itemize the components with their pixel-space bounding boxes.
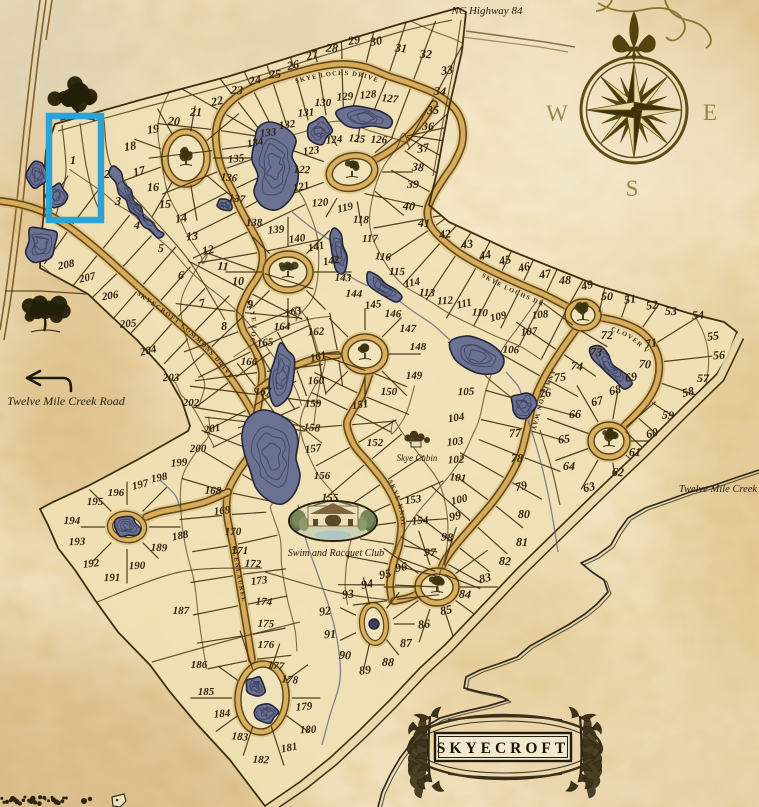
svg-text:193: 193: [69, 536, 86, 549]
svg-text:SKYECROFT: SKYECROFT: [437, 740, 569, 757]
svg-text:202: 202: [182, 397, 200, 409]
svg-text:187: 187: [173, 605, 190, 617]
svg-text:122: 122: [293, 164, 311, 177]
svg-text:25: 25: [268, 67, 281, 81]
svg-text:88: 88: [382, 655, 395, 670]
svg-text:30: 30: [368, 33, 383, 49]
svg-text:189: 189: [151, 542, 168, 555]
svg-text:185: 185: [198, 686, 215, 698]
svg-text:108: 108: [531, 308, 549, 322]
svg-text:182: 182: [252, 754, 270, 767]
svg-text:18: 18: [123, 138, 137, 154]
svg-text:167: 167: [255, 386, 272, 398]
svg-text:129: 129: [336, 90, 354, 103]
svg-text:112: 112: [437, 294, 454, 307]
svg-text:40: 40: [401, 198, 415, 213]
svg-text:101: 101: [449, 471, 467, 485]
svg-text:113: 113: [419, 287, 436, 300]
svg-text:151: 151: [351, 398, 369, 412]
svg-text:61: 61: [629, 445, 641, 459]
svg-text:73: 73: [589, 345, 602, 360]
svg-text:143: 143: [335, 272, 352, 285]
svg-text:92: 92: [318, 603, 332, 619]
svg-text:90: 90: [339, 648, 352, 663]
svg-text:178: 178: [281, 673, 299, 686]
svg-text:128: 128: [359, 88, 377, 101]
svg-text:74: 74: [570, 359, 583, 374]
svg-text:62: 62: [612, 465, 625, 480]
svg-text:29: 29: [346, 32, 361, 48]
svg-text:147: 147: [400, 323, 417, 335]
svg-text:87: 87: [400, 636, 413, 650]
svg-text:110: 110: [472, 306, 489, 319]
svg-text:84: 84: [458, 587, 471, 602]
svg-text:11: 11: [217, 259, 229, 274]
svg-text:203: 203: [162, 372, 180, 384]
svg-text:51: 51: [623, 291, 637, 306]
svg-text:162: 162: [307, 326, 325, 339]
svg-text:98: 98: [440, 529, 453, 544]
svg-text:106: 106: [502, 344, 520, 357]
svg-text:Twelve Mile Creek: Twelve Mile Creek: [679, 484, 757, 495]
svg-text:97: 97: [424, 545, 437, 559]
svg-text:10: 10: [232, 274, 244, 288]
svg-text:W: W: [546, 101, 568, 126]
svg-text:16: 16: [147, 180, 160, 195]
svg-text:78: 78: [511, 451, 523, 465]
svg-text:36: 36: [421, 119, 434, 133]
svg-text:117: 117: [362, 233, 379, 245]
svg-text:6: 6: [178, 268, 185, 282]
svg-text:160: 160: [308, 375, 325, 388]
svg-text:72: 72: [601, 328, 613, 342]
svg-text:22: 22: [209, 93, 224, 109]
svg-text:166: 166: [241, 356, 258, 369]
svg-text:123: 123: [302, 144, 321, 158]
svg-text:159: 159: [305, 398, 322, 410]
svg-text:38: 38: [410, 159, 424, 174]
svg-text:194: 194: [64, 515, 81, 527]
svg-text:32: 32: [419, 47, 433, 62]
svg-text:71: 71: [644, 335, 658, 351]
svg-text:1: 1: [70, 153, 76, 167]
svg-text:171: 171: [232, 545, 249, 557]
svg-text:135: 135: [227, 152, 245, 166]
svg-text:177: 177: [267, 659, 285, 673]
svg-text:164: 164: [274, 321, 291, 333]
svg-text:131: 131: [297, 106, 314, 119]
svg-text:195: 195: [87, 496, 104, 508]
svg-text:200: 200: [189, 443, 207, 455]
svg-text:E: E: [703, 100, 717, 125]
svg-text:168: 168: [205, 485, 222, 498]
svg-text:148: 148: [410, 341, 427, 353]
svg-text:94: 94: [360, 576, 374, 592]
svg-text:64: 64: [563, 459, 575, 473]
svg-text:130: 130: [315, 97, 332, 109]
svg-text:42: 42: [437, 226, 452, 242]
svg-text:91: 91: [324, 627, 337, 642]
svg-text:156: 156: [314, 470, 331, 482]
svg-text:174: 174: [255, 596, 273, 609]
svg-text:Skye Cabin: Skye Cabin: [397, 453, 438, 463]
svg-text:152: 152: [367, 437, 384, 449]
svg-text:102: 102: [447, 454, 465, 467]
svg-text:155: 155: [322, 492, 339, 504]
svg-text:107: 107: [520, 325, 538, 338]
svg-text:43: 43: [459, 236, 474, 251]
svg-text:126: 126: [370, 134, 388, 147]
svg-text:180: 180: [299, 724, 317, 737]
svg-text:20: 20: [167, 114, 181, 129]
svg-text:44: 44: [477, 247, 492, 263]
svg-text:23: 23: [230, 83, 243, 97]
svg-text:138: 138: [246, 217, 263, 229]
svg-text:144: 144: [345, 288, 363, 301]
svg-text:153: 153: [404, 493, 423, 507]
svg-text:186: 186: [191, 659, 208, 671]
svg-text:205: 205: [118, 317, 137, 331]
svg-text:146: 146: [385, 308, 402, 321]
svg-text:184: 184: [213, 707, 231, 720]
svg-text:24: 24: [247, 72, 262, 88]
svg-text:165: 165: [256, 336, 274, 349]
svg-text:136: 136: [220, 171, 238, 185]
svg-text:175: 175: [257, 618, 275, 631]
svg-text:69: 69: [624, 369, 638, 385]
svg-text:93: 93: [341, 586, 355, 602]
svg-text:179: 179: [295, 700, 313, 713]
svg-text:21: 21: [189, 105, 202, 119]
svg-text:183: 183: [231, 730, 249, 743]
svg-text:158: 158: [303, 421, 321, 434]
svg-text:125: 125: [348, 132, 366, 146]
svg-text:80: 80: [518, 507, 530, 521]
svg-text:190: 190: [129, 560, 146, 573]
svg-text:154: 154: [411, 514, 429, 527]
svg-text:52: 52: [645, 297, 659, 313]
svg-text:19: 19: [146, 121, 160, 137]
svg-text:137: 137: [228, 192, 246, 205]
svg-text:34: 34: [432, 83, 446, 98]
svg-text:172: 172: [244, 558, 262, 571]
svg-text:41: 41: [417, 216, 431, 231]
svg-text:76: 76: [538, 385, 552, 400]
svg-text:86: 86: [417, 616, 431, 631]
svg-text:53: 53: [665, 304, 677, 318]
svg-text:65: 65: [557, 431, 571, 446]
svg-text:115: 115: [389, 266, 406, 278]
svg-text:132: 132: [278, 118, 297, 132]
svg-text:149: 149: [406, 370, 423, 382]
svg-text:50: 50: [601, 289, 613, 303]
svg-text:196: 196: [108, 487, 125, 499]
svg-text:55: 55: [706, 328, 720, 344]
svg-text:31: 31: [393, 40, 407, 55]
svg-text:150: 150: [381, 386, 398, 398]
svg-text:8: 8: [220, 319, 227, 333]
svg-text:169: 169: [213, 504, 231, 518]
svg-text:157: 157: [304, 442, 323, 456]
svg-text:70: 70: [638, 357, 651, 372]
svg-text:139: 139: [267, 223, 285, 236]
svg-text:124: 124: [325, 133, 343, 146]
svg-text:35: 35: [426, 103, 440, 118]
svg-text:3: 3: [114, 194, 121, 208]
svg-text:66: 66: [569, 407, 581, 421]
svg-text:59: 59: [661, 407, 674, 422]
svg-text:82: 82: [499, 554, 512, 569]
svg-text:75: 75: [553, 369, 567, 384]
svg-text:103: 103: [446, 435, 464, 449]
svg-text:116: 116: [374, 250, 391, 263]
svg-text:54: 54: [692, 308, 705, 323]
svg-text:145: 145: [364, 298, 382, 312]
svg-text:26: 26: [285, 57, 300, 73]
svg-text:199: 199: [170, 456, 188, 469]
svg-text:45: 45: [497, 252, 512, 268]
svg-text:48: 48: [558, 273, 571, 287]
svg-text:105: 105: [458, 386, 475, 399]
svg-text:13: 13: [185, 229, 198, 244]
svg-text:33: 33: [439, 62, 454, 78]
svg-text:192: 192: [82, 557, 100, 571]
svg-text:127: 127: [381, 92, 399, 106]
svg-text:Twelve Mile Creek Road: Twelve Mile Creek Road: [7, 394, 126, 408]
svg-text:191: 191: [104, 572, 121, 584]
svg-text:120: 120: [311, 196, 329, 209]
svg-text:140: 140: [288, 232, 306, 246]
svg-text:4: 4: [132, 218, 140, 233]
svg-text:77: 77: [509, 426, 523, 441]
svg-text:15: 15: [159, 197, 172, 212]
svg-text:170: 170: [225, 526, 242, 538]
svg-text:39: 39: [406, 177, 419, 191]
svg-text:Swim and Racquet Club: Swim and Racquet Club: [288, 548, 384, 559]
svg-text:173: 173: [250, 574, 268, 588]
svg-text:56: 56: [713, 348, 726, 363]
svg-text:176: 176: [258, 639, 275, 651]
svg-text:81: 81: [516, 535, 528, 549]
svg-text:118: 118: [353, 214, 370, 227]
svg-text:89: 89: [358, 662, 372, 677]
svg-text:57: 57: [697, 371, 710, 385]
svg-text:9: 9: [246, 297, 253, 311]
svg-text:NC Highway 84: NC Highway 84: [451, 5, 523, 17]
svg-text:5: 5: [158, 241, 164, 255]
svg-text:14: 14: [174, 210, 188, 226]
svg-text:28: 28: [325, 41, 339, 56]
svg-text:S: S: [626, 176, 639, 201]
